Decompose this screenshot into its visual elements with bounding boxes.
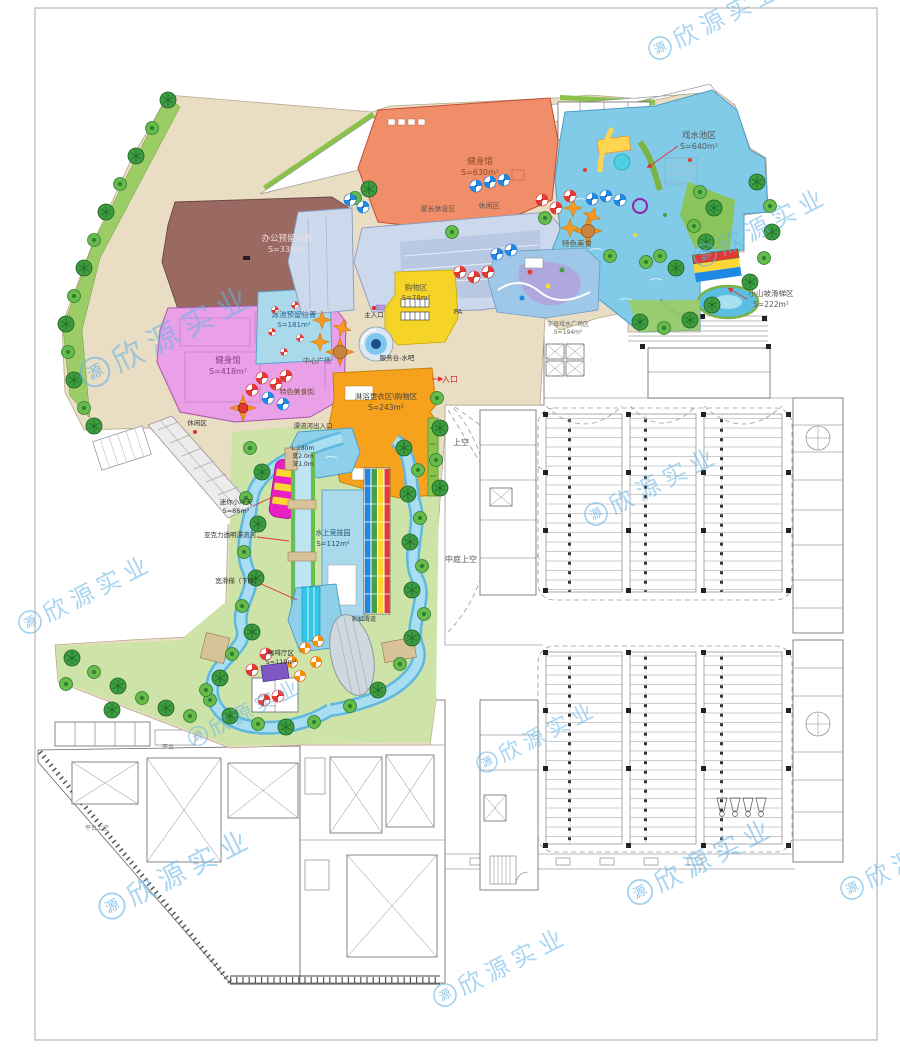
column-marker: [701, 708, 706, 713]
label-splash-pool-name: 戏水池区: [682, 130, 717, 141]
label-mini-slide-name: 迷你小冲天: [220, 497, 253, 506]
label-mini-slide-area: S=86m²: [223, 507, 250, 515]
label-rainbow-slide: 彩虹滑道: [352, 615, 376, 623]
column-marker: [786, 766, 791, 771]
skylight-void: [72, 762, 138, 804]
label-gym-top-area: S=630m²: [461, 168, 499, 177]
label-service-bar: 服务台-水吧: [380, 353, 415, 362]
label-water-sports-name: 水上竞技园: [316, 528, 351, 537]
column-marker: [701, 588, 706, 593]
label-alphabet-plaza-name: 字母戏水广场区: [547, 320, 589, 328]
parking-stall-block: [546, 652, 622, 844]
label-rest-area-1: 休闲区: [479, 201, 500, 210]
column-marker: [543, 528, 548, 533]
column-marker: [786, 412, 791, 417]
parking-stall-block: [704, 652, 782, 844]
column-marker: [626, 650, 631, 655]
column-marker: [786, 528, 791, 533]
column-marker: [701, 650, 706, 655]
label-pool-reserved-name: 泳池预留位置: [272, 309, 317, 319]
label-wide-slide: 宽滑梯（下降）: [215, 576, 261, 585]
label-center-plaza: 中心广场: [303, 356, 331, 365]
label-hill-slide-area: S=222m²: [753, 300, 789, 309]
column-marker: [701, 528, 706, 533]
watermark: 源欣源实业: [836, 815, 900, 907]
column-marker: [786, 650, 791, 655]
column-marker: [626, 528, 631, 533]
building-bottom-left-wing: [38, 722, 300, 983]
watermark-text: 欣源实业: [453, 922, 573, 1001]
label-parents-rest: 家长休息区: [421, 204, 456, 213]
skylight-void: [330, 757, 382, 833]
pool-lap-small: [288, 208, 354, 315]
label-shower-zone-area: S=243m²: [368, 403, 404, 412]
label-cafe-area: S=119m²: [266, 658, 297, 666]
pergola: [93, 426, 152, 471]
zone-shop: [385, 270, 458, 345]
column-marker: [543, 708, 548, 713]
site-plan-page: 健身馆S=630m²戏水池区S=640m²办公预留位置S=338m²健身馆S=4…: [0, 0, 900, 1047]
elevator-bank: [546, 344, 584, 376]
label-terrace-void: 平台上空: [85, 824, 109, 832]
column-marker: [626, 412, 631, 417]
label-splash-pool-area: S=640m²: [680, 142, 718, 151]
label-hill-slide-name: 小山坡滑梯区: [749, 288, 794, 298]
building-right-strip: [793, 398, 843, 862]
label-entrance: 入口: [442, 375, 458, 384]
column-marker: [786, 708, 791, 713]
label-gym-left-name: 健身馆: [215, 355, 241, 366]
column-marker: [543, 766, 548, 771]
label-cafe-name: 咖啡厅区: [268, 648, 295, 657]
watermark: 源欣源实业: [644, 0, 788, 66]
column-marker: [701, 766, 706, 771]
label-pa-room: PA: [454, 308, 463, 316]
label-main-entrance: 主入口: [364, 310, 384, 319]
watermark: 源欣源实业: [14, 549, 158, 641]
skylight-void: [228, 763, 298, 818]
watermark: 源欣源实业: [429, 922, 573, 1014]
column-marker: [543, 843, 548, 848]
zone-gym-top: [358, 98, 558, 228]
label-river-spec-2: 宽2.0m: [292, 452, 314, 460]
watermark-text: 欣源实业: [860, 815, 900, 894]
label-atrium-void: 中庭上空: [445, 554, 477, 564]
skylight-void: [347, 855, 437, 957]
column-marker: [626, 843, 631, 848]
main-entrance-pin: [372, 306, 376, 310]
parking-stall-block: [630, 652, 696, 844]
label-alphabet-plaza-area: S=194m²: [554, 329, 583, 336]
label-water-sports-area: S=112m²: [316, 540, 349, 548]
column-marker: [626, 766, 631, 771]
watermark-logo-char: 源: [631, 882, 650, 902]
column-marker: [626, 588, 631, 593]
wide-slide-lanes: [302, 587, 320, 641]
label-shop-zone-name: 购物区: [405, 282, 428, 292]
label-river-spec-1: L:180m: [292, 445, 315, 452]
watermark-logo-char: 源: [651, 39, 668, 57]
label-terrace: 平台: [162, 743, 174, 751]
label-office-reserved-area: S=338m²: [268, 245, 306, 254]
watermark-logo-char: 源: [843, 879, 860, 897]
skylight-void: [386, 755, 434, 827]
watermark-text: 欣源实业: [38, 549, 158, 628]
column-marker: [543, 650, 548, 655]
column-marker: [786, 588, 791, 593]
column-marker: [786, 470, 791, 475]
label-food-street-right: 特色美食: [562, 238, 592, 248]
site-plan-drawing: 健身馆S=630m²戏水池区S=640m²办公预留位置S=338m²健身馆S=4…: [0, 0, 900, 1047]
label-food-street-left: 特色美食街: [280, 387, 315, 396]
label-river-gate: 漂流河出入口: [294, 421, 333, 430]
watermark-logo-char: 源: [21, 613, 38, 631]
column-marker: [543, 470, 548, 475]
label-river-spec-3: 深1.0m: [292, 460, 314, 468]
column-marker: [786, 843, 791, 848]
label-shower-zone-name: 淋浴更衣区\购物区: [355, 391, 418, 401]
label-rest-area-2: 休闲区: [187, 418, 207, 427]
rainbow-racing-slide: [364, 468, 390, 614]
label-gym-top-name: 健身馆: [467, 156, 493, 167]
label-pool-reserved-area: S=181m²: [277, 321, 310, 329]
label-void-1: 上空: [453, 437, 469, 447]
label-gym-left-area: S=418m²: [209, 367, 247, 376]
label-shop-zone-area: S=78m²: [402, 294, 431, 302]
label-office-reserved-name: 办公预留位置: [261, 233, 313, 244]
column-marker: [626, 470, 631, 475]
watermark-logo-char: 源: [436, 986, 453, 1004]
column-marker: [543, 588, 548, 593]
column-marker: [626, 708, 631, 713]
watermark-logo-char: 源: [102, 896, 122, 917]
column-marker: [701, 412, 706, 417]
label-acrylic-river: 亚克力透明漂流河: [204, 530, 257, 539]
parking-stall-block: [704, 414, 782, 592]
column-marker: [543, 412, 548, 417]
